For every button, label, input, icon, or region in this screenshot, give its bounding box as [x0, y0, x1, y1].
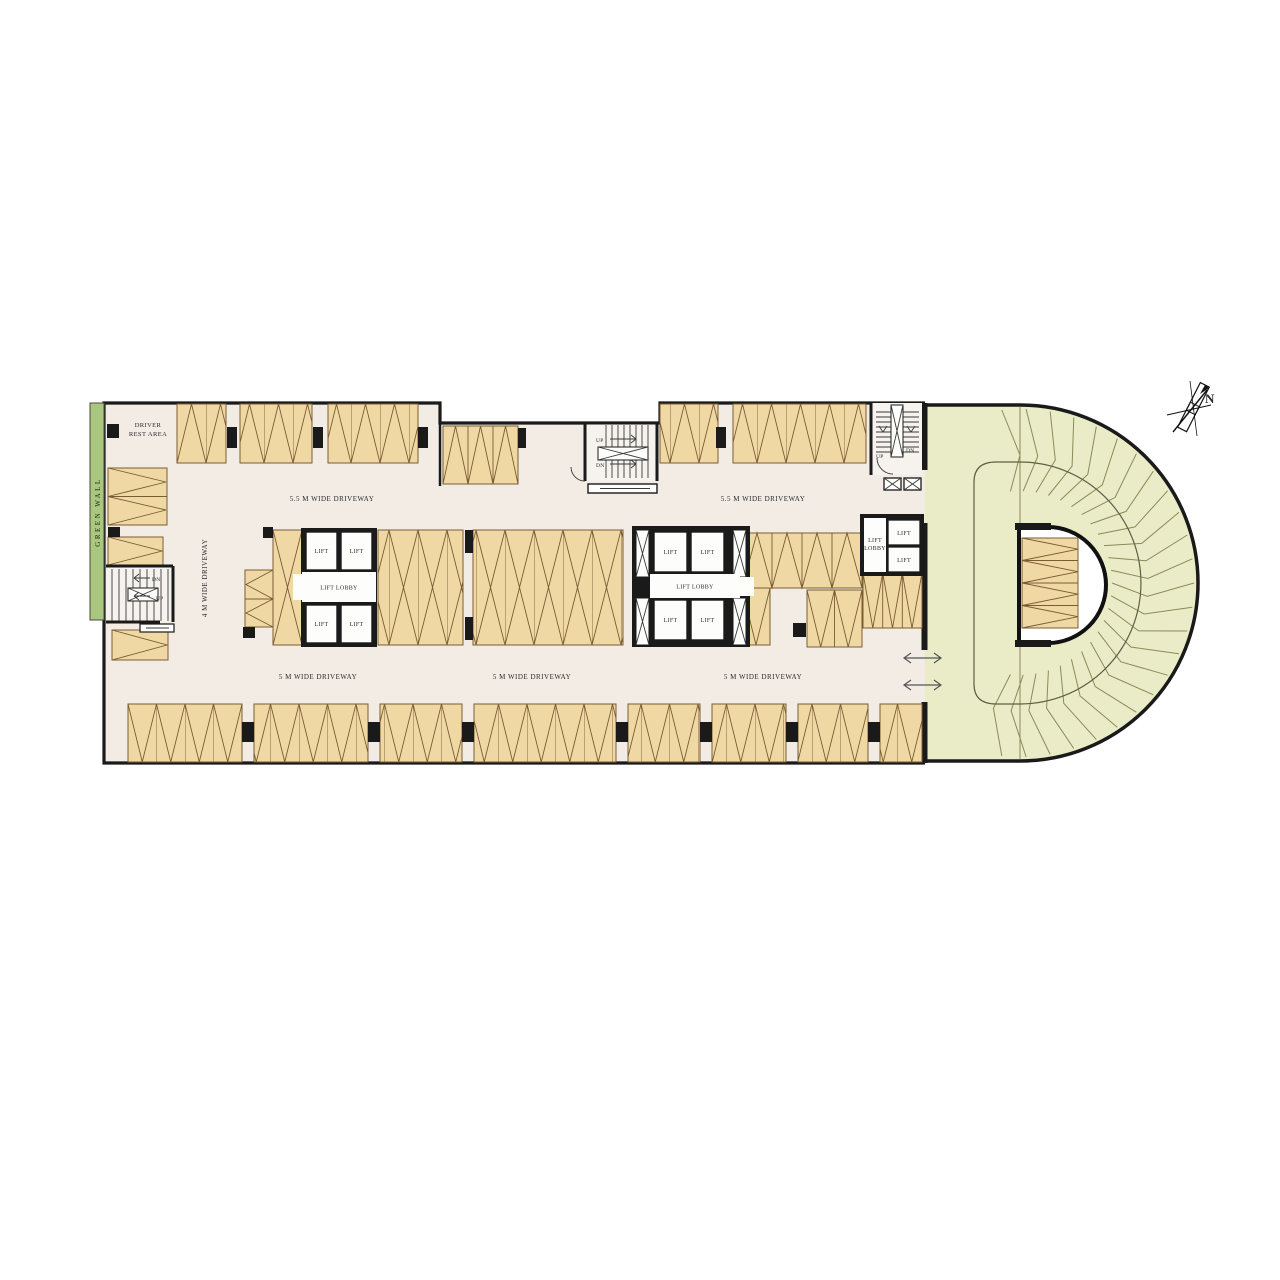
parking-block [863, 573, 922, 628]
lift-core-left: LIFT LIFT LIFT LIFT LIFT LOBBY [293, 528, 377, 647]
lift-label: LIFT [897, 531, 911, 537]
parking-block [378, 530, 463, 645]
lift-label: LIFT [350, 549, 364, 555]
parking-block [128, 704, 242, 762]
parking-block [380, 704, 462, 762]
driveway-label: 4 M WIDE DRIVEWAY [201, 539, 209, 617]
lift-lobby-label: LIFT LOBBY [676, 585, 714, 591]
green-wall-label: GREEN WALL [94, 477, 102, 546]
stair-up-label: UP [156, 596, 164, 602]
lift-label: LIFT [664, 618, 678, 624]
ramp-court [925, 403, 1198, 763]
parking-block [807, 590, 862, 647]
parking-block [628, 704, 700, 762]
stair-up-label: UP [596, 438, 604, 444]
lift-label: LIFT [701, 618, 715, 624]
parking-block [733, 404, 866, 463]
lift-label: LIFT [701, 550, 715, 556]
driveway-label: 5.5 M WIDE DRIVEWAY [721, 495, 806, 503]
driveway-label: 5 M WIDE DRIVEWAY [279, 673, 357, 681]
north-label: N [1205, 391, 1215, 406]
parking-block [108, 537, 163, 565]
lift-lobby-label: LOBBY [864, 546, 886, 552]
lift-lobby-label: LIFT LOBBY [320, 586, 358, 592]
parking-block [798, 704, 868, 762]
driver-rest-area-label: REST AREA [129, 431, 167, 438]
parking-block [240, 404, 312, 463]
right-wall-segment [922, 403, 928, 470]
stair-dn-label: DN [596, 463, 605, 469]
green-wall: GREEN WALL [90, 403, 104, 620]
parking-block [474, 704, 616, 762]
parking-block [112, 630, 168, 660]
parking-block [742, 533, 862, 588]
lift-label: LIFT [315, 622, 329, 628]
parking-block [254, 704, 368, 762]
parking-floor-plan: GREEN WALL [0, 0, 1280, 1280]
driveway-label: 5 M WIDE DRIVEWAY [724, 673, 802, 681]
driveway-label: 5 M WIDE DRIVEWAY [493, 673, 571, 681]
parking-block [880, 704, 922, 762]
stair-dn-label: DN [152, 577, 161, 583]
north-arrow: N [1167, 381, 1215, 436]
parking-block [108, 468, 167, 525]
stair-dn-label: DN [906, 448, 915, 454]
parking-block [660, 404, 718, 463]
inner-court-parking [1022, 538, 1078, 628]
parking-block [177, 404, 226, 463]
lift-label: LIFT [350, 622, 364, 628]
parking-block [443, 426, 518, 484]
lift-lobby-label: LIFT [868, 538, 882, 544]
driver-rest-area-label: DRIVER [135, 422, 162, 429]
parking-block [245, 570, 273, 627]
parking-block [473, 530, 623, 645]
parking-block [712, 704, 786, 762]
floor-plan-page: { "north_arrow": { "label": "N" }, "gree… [0, 0, 1280, 1280]
lift-label: LIFT [315, 549, 329, 555]
lift-label: LIFT [897, 558, 911, 564]
lift-core-center: LIFT LIFT LIFT LIFT LIFT LOBBY [632, 526, 754, 647]
lift-label: LIFT [664, 550, 678, 556]
lift-core-right: LIFT LIFT LIFT LOBBY [860, 514, 924, 576]
driveway-label: 5.5 M WIDE DRIVEWAY [290, 495, 375, 503]
parking-block [328, 404, 418, 463]
